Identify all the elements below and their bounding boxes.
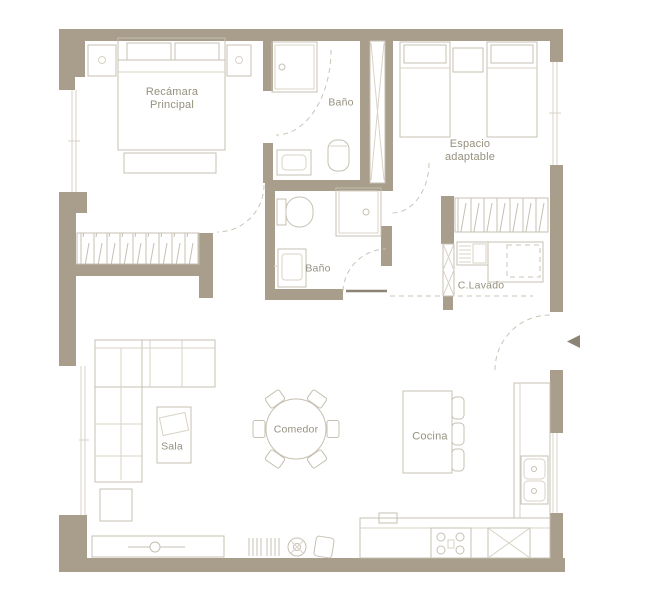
plan-drawing [0,0,666,602]
walls [59,29,565,572]
duct-shaft [370,41,385,183]
label-master-bedroom-line2: Principal [146,99,198,112]
label-bath-mid: Baño [305,263,330,276]
label-master-bedroom-line1: Recámara [146,86,198,99]
appliances-laundry [457,242,543,282]
label-kitchen: Cocina [412,431,447,444]
label-adaptable-space: Espacio adaptable [445,138,495,164]
furniture-kitchen [360,383,550,558]
label-adaptable-space-line1: Espacio [445,138,495,151]
label-master-bedroom: Recámara Principal [146,86,198,112]
closet-master-bedroom [77,233,199,264]
label-bath-top: Baño [328,97,353,110]
label-adaptable-space-line2: adaptable [445,151,495,164]
furniture-adaptable-space [400,42,537,137]
label-dining-room: Comedor [274,424,319,437]
entry-arrow-icon [567,335,580,348]
laundry-bifold-door [443,244,454,296]
floor-plan: Recámara Principal Baño Espacio adaptabl… [0,0,666,602]
closet-laundry [455,198,548,232]
label-living-room: Sala [161,441,183,454]
label-laundry: C.Lavado [458,280,505,293]
media-console [92,536,334,559]
furniture-living [95,340,215,521]
